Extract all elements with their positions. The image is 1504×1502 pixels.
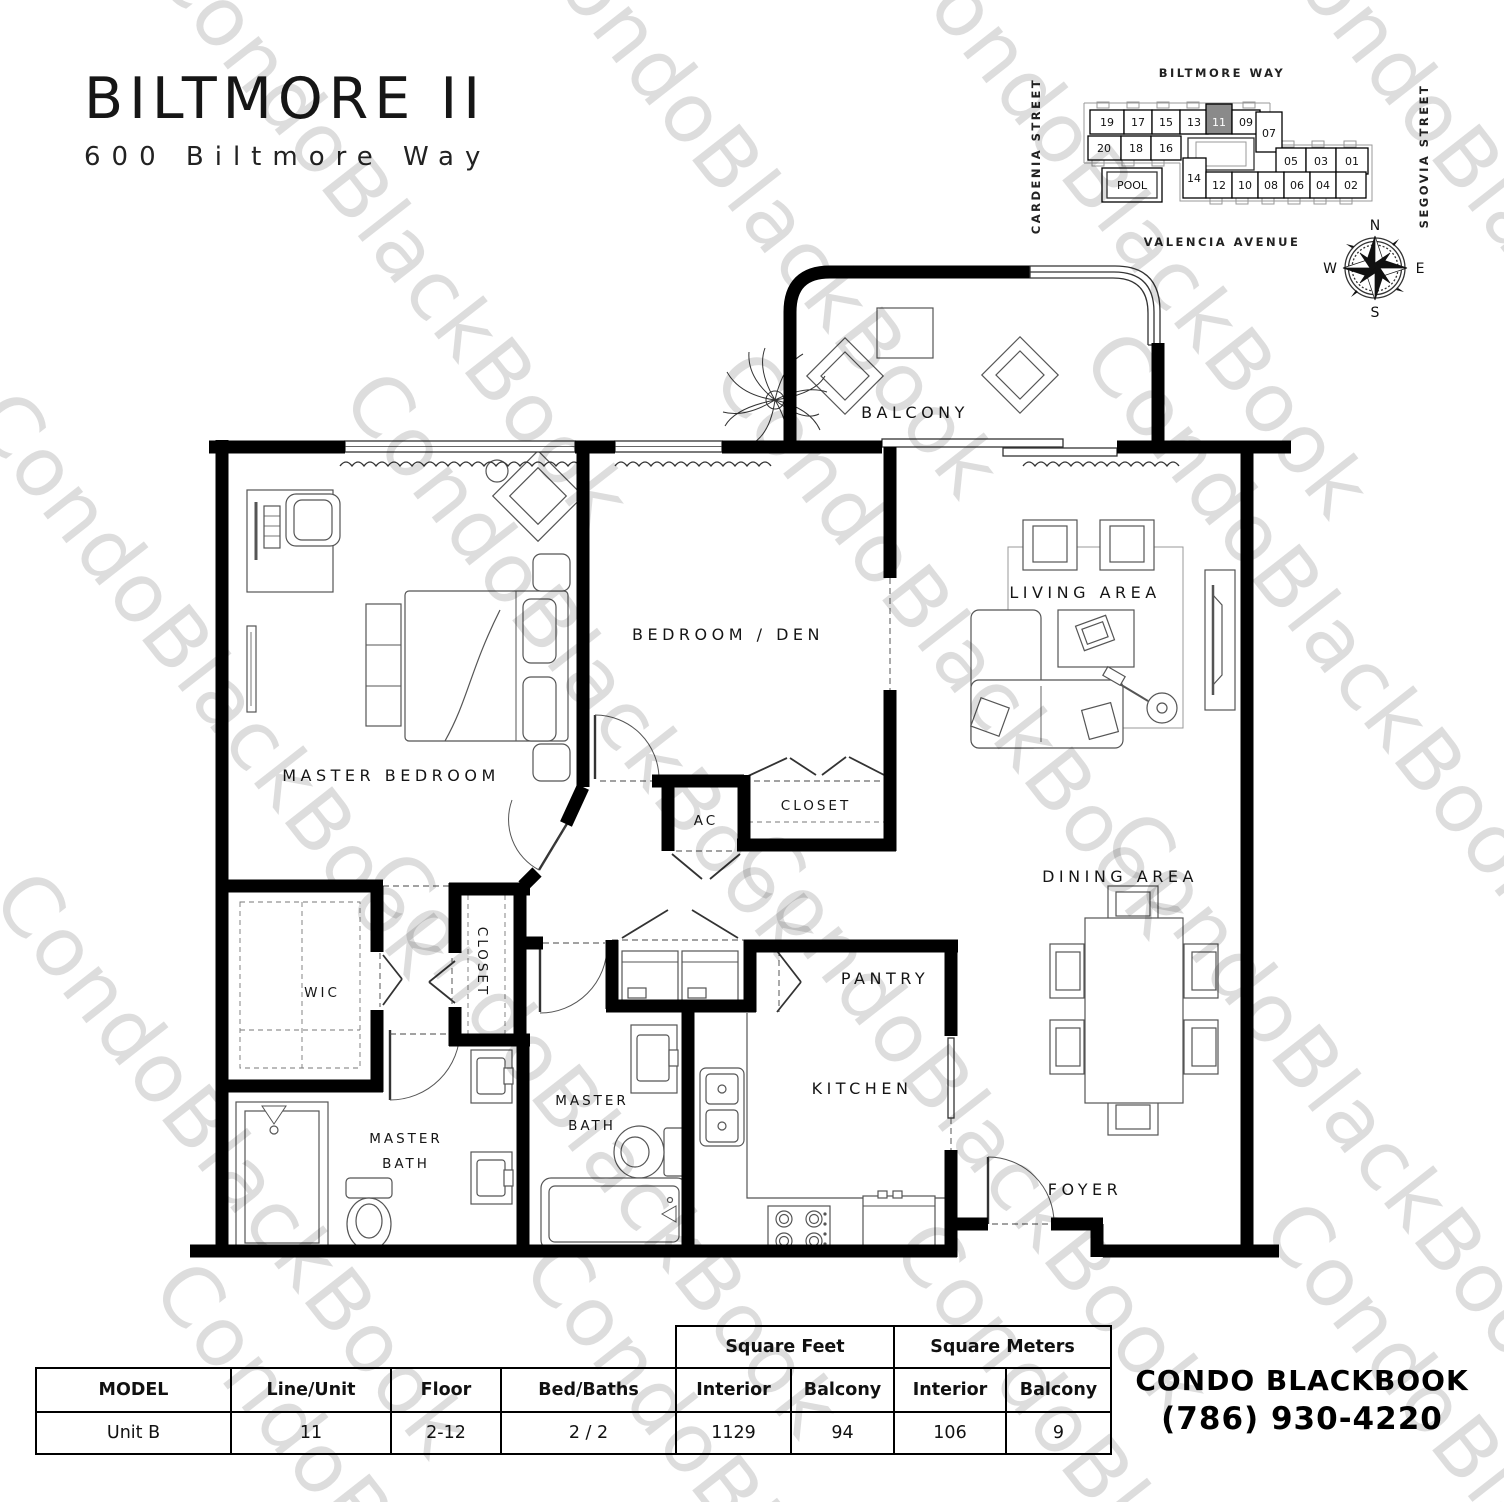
unit-box: 15	[1152, 110, 1180, 134]
unit-box: 10	[1232, 172, 1258, 198]
bifold-door	[746, 757, 888, 777]
balcony-chair	[982, 337, 1058, 413]
svg-text:15: 15	[1159, 116, 1173, 129]
svg-text:09: 09	[1239, 116, 1253, 129]
svg-text:13: 13	[1187, 116, 1201, 129]
col-header-floor: Floor	[391, 1368, 501, 1412]
floorplan-page: BILTMORE II 600 Biltmore Way BILTMORE WA…	[0, 0, 1504, 1502]
svg-text:BATH: BATH	[382, 1156, 430, 1172]
nightstand	[533, 744, 570, 781]
svg-text:06: 06	[1290, 179, 1304, 192]
compass-e: E	[1416, 261, 1425, 277]
armchair	[1100, 520, 1154, 570]
branding-name: CONDO BLACKBOOK	[1118, 1364, 1486, 1397]
dresser	[366, 604, 401, 726]
cell-sm-interior: 106	[894, 1412, 1006, 1454]
group-header-square-meters: Square Meters	[894, 1326, 1111, 1368]
label-wic: WIC	[304, 985, 340, 1001]
dining-chair	[1108, 1101, 1158, 1135]
unit-box: 01	[1336, 148, 1368, 174]
compass-w: W	[1323, 261, 1337, 277]
svg-text:01: 01	[1345, 155, 1359, 168]
cell-model: Unit B	[36, 1412, 231, 1454]
svg-text:17: 17	[1131, 116, 1145, 129]
unit-box: 05	[1276, 148, 1306, 174]
svg-text:03: 03	[1314, 155, 1328, 168]
compass-s: S	[1371, 305, 1380, 321]
col-header-bed-baths: Bed/Baths	[501, 1368, 676, 1412]
table-row: Unit B 11 2-12 2 / 2 1129 94 106 9	[36, 1412, 1111, 1454]
kitchen-sink	[700, 1068, 744, 1146]
keyboard	[264, 506, 280, 548]
spec-table: Square Feet Square Meters MODEL Line/Uni…	[35, 1325, 1112, 1455]
unit-box: 02	[1336, 172, 1366, 198]
coffee-table	[1058, 610, 1134, 667]
street-label-top: BILTMORE WAY	[1159, 66, 1286, 80]
watermark-layer: CondoBlackBook CondoBlackBook CondoBlack…	[0, 0, 1504, 1502]
unit-box: 17	[1124, 110, 1152, 134]
tv-console	[1205, 570, 1235, 710]
dining-chair	[1050, 1020, 1084, 1074]
branding-block: CONDO BLACKBOOK (786) 930-4220	[1118, 1364, 1486, 1437]
cell-sm-balcony: 9	[1006, 1412, 1111, 1454]
compass-n: N	[1370, 218, 1380, 234]
svg-text:05: 05	[1284, 155, 1298, 168]
cell-bed-baths: 2 / 2	[501, 1412, 676, 1454]
toilet	[346, 1178, 392, 1250]
table-spacer	[36, 1326, 676, 1368]
vanity	[631, 1025, 678, 1093]
window-sill-wave	[615, 462, 771, 466]
unit-box: 14	[1183, 158, 1206, 198]
compass-rose: N E S W	[1323, 218, 1424, 321]
unit-box: 03	[1306, 148, 1336, 174]
cell-line-unit: 11	[231, 1412, 391, 1454]
label-living-area: LIVING AREA	[1009, 583, 1160, 602]
col-header-line-unit: Line/Unit	[231, 1368, 391, 1412]
svg-text:07: 07	[1262, 127, 1276, 140]
cell-floor: 2-12	[391, 1412, 501, 1454]
svg-text:14: 14	[1187, 172, 1201, 185]
col-header-model: MODEL	[36, 1368, 231, 1412]
svg-text:11: 11	[1212, 116, 1226, 129]
floorplan-svg: BILTMORE WAY VALENCIA AVENUE CARDENIA ST…	[0, 0, 1504, 1502]
col-header-sf-balcony: Balcony	[791, 1368, 894, 1412]
compass-star	[1343, 236, 1407, 300]
label-master-bath-1: MASTER	[369, 1131, 443, 1147]
col-header-sf-interior: Interior	[676, 1368, 791, 1412]
group-header-square-feet: Square Feet	[676, 1326, 894, 1368]
svg-text:02: 02	[1344, 179, 1358, 192]
unit-box: 16	[1151, 136, 1181, 160]
col-header-sm-interior: Interior	[894, 1368, 1006, 1412]
svg-text:08: 08	[1264, 179, 1278, 192]
unit-box: 13	[1180, 110, 1208, 134]
label-bedroom-den: BEDROOM / DEN	[632, 625, 824, 644]
unit-box: 07	[1256, 112, 1282, 152]
label-closet: CLOSET	[781, 798, 851, 814]
cell-sf-balcony: 94	[791, 1412, 894, 1454]
unit-box: 04	[1310, 172, 1336, 198]
svg-text:12: 12	[1212, 179, 1226, 192]
cell-sf-interior: 1129	[676, 1412, 791, 1454]
washer	[622, 951, 678, 1004]
svg-text:10: 10	[1238, 179, 1252, 192]
dining-chair	[1184, 1020, 1218, 1074]
unit-box: 06	[1284, 172, 1310, 198]
svg-text:04: 04	[1316, 179, 1330, 192]
unit-box: 08	[1258, 172, 1284, 198]
unit-box-highlighted: 11	[1206, 104, 1232, 134]
window	[615, 441, 722, 452]
vanity	[471, 1152, 513, 1204]
laundry-appliances	[622, 951, 738, 1004]
col-header-sm-balcony: Balcony	[1006, 1368, 1111, 1412]
dining-chair	[1050, 944, 1084, 998]
unit-box: 12	[1206, 172, 1232, 198]
branding-phone: (786) 930-4220	[1118, 1401, 1486, 1437]
dryer	[682, 951, 738, 1004]
armchair	[1023, 520, 1077, 570]
svg-text:16: 16	[1159, 142, 1173, 155]
